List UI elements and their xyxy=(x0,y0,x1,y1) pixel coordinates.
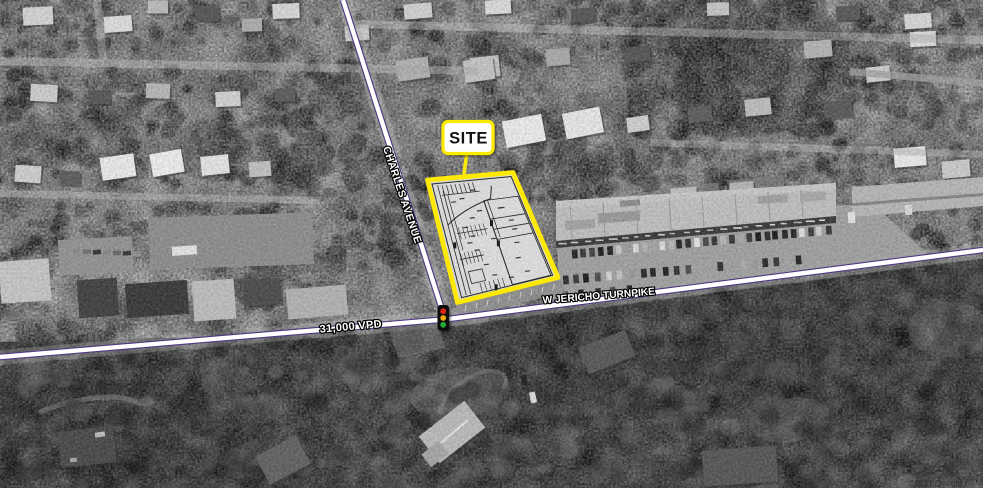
svg-text:©2011 Google: ©2011 Google xyxy=(908,478,963,488)
svg-text:SITE: SITE xyxy=(449,130,488,148)
